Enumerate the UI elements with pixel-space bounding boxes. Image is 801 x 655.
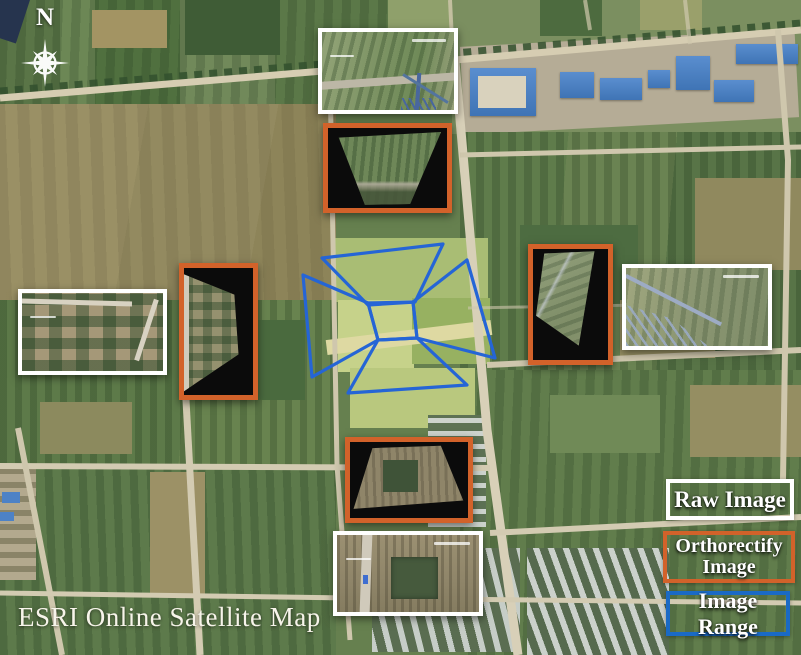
- raw-photo: [337, 535, 479, 612]
- raw-image-inset-north: [318, 28, 458, 114]
- inset-annotation: [346, 558, 372, 560]
- image-range-polygon-east: [413, 260, 495, 358]
- orthorectified-photo: [184, 268, 253, 395]
- field-plot: [391, 557, 438, 599]
- orthorectified-photo: [533, 249, 608, 360]
- vehicle: [363, 575, 368, 584]
- photo-road: [322, 72, 454, 90]
- raw-photo: [626, 268, 768, 346]
- north-label: N: [10, 5, 80, 31]
- legend-orthorectify-image: Orthorectify Image: [663, 531, 795, 583]
- ortho-image-inset-east: [528, 244, 613, 365]
- legend-raw-image: Raw Image: [666, 479, 794, 520]
- inset-annotation: [330, 55, 354, 57]
- legend-range-label: Image Range: [670, 588, 786, 640]
- raw-photo: [22, 293, 163, 371]
- raw-image-inset-west: [18, 289, 167, 375]
- legend-ortho-label: Orthorectify Image: [667, 536, 791, 578]
- crane-structure: [401, 98, 435, 110]
- raw-image-inset-east: [622, 264, 772, 350]
- ortho-image-inset-south: [345, 437, 473, 523]
- ortho-image-inset-west: [179, 263, 258, 400]
- image-range-polygon-north: [322, 244, 443, 305]
- inset-annotation: [434, 542, 471, 545]
- orthorectified-photo: [328, 128, 447, 208]
- legend-raw-label: Raw Image: [674, 487, 786, 513]
- field-plot: [383, 460, 418, 492]
- compass-rose: N: [10, 5, 80, 100]
- image-range-polygon-center: [368, 302, 417, 340]
- photo-road: [134, 298, 159, 360]
- raw-photo: [322, 32, 454, 110]
- inset-annotation: [30, 316, 55, 318]
- satellite-map-figure: N Raw Image Orthorectify Image Image Ran…: [0, 0, 801, 655]
- map-credit: ESRI Online Satellite Map: [18, 602, 321, 633]
- crane-structure: [626, 296, 708, 346]
- compass-star-icon: [13, 31, 77, 95]
- orthorectified-photo: [350, 442, 468, 518]
- photo-road: [22, 299, 132, 307]
- inset-annotation: [412, 39, 446, 42]
- inset-annotation: [723, 275, 760, 278]
- photo-road: [360, 535, 373, 612]
- legend-image-range: Image Range: [666, 591, 790, 636]
- raw-image-inset-south: [333, 531, 483, 616]
- ortho-image-inset-north: [323, 123, 452, 213]
